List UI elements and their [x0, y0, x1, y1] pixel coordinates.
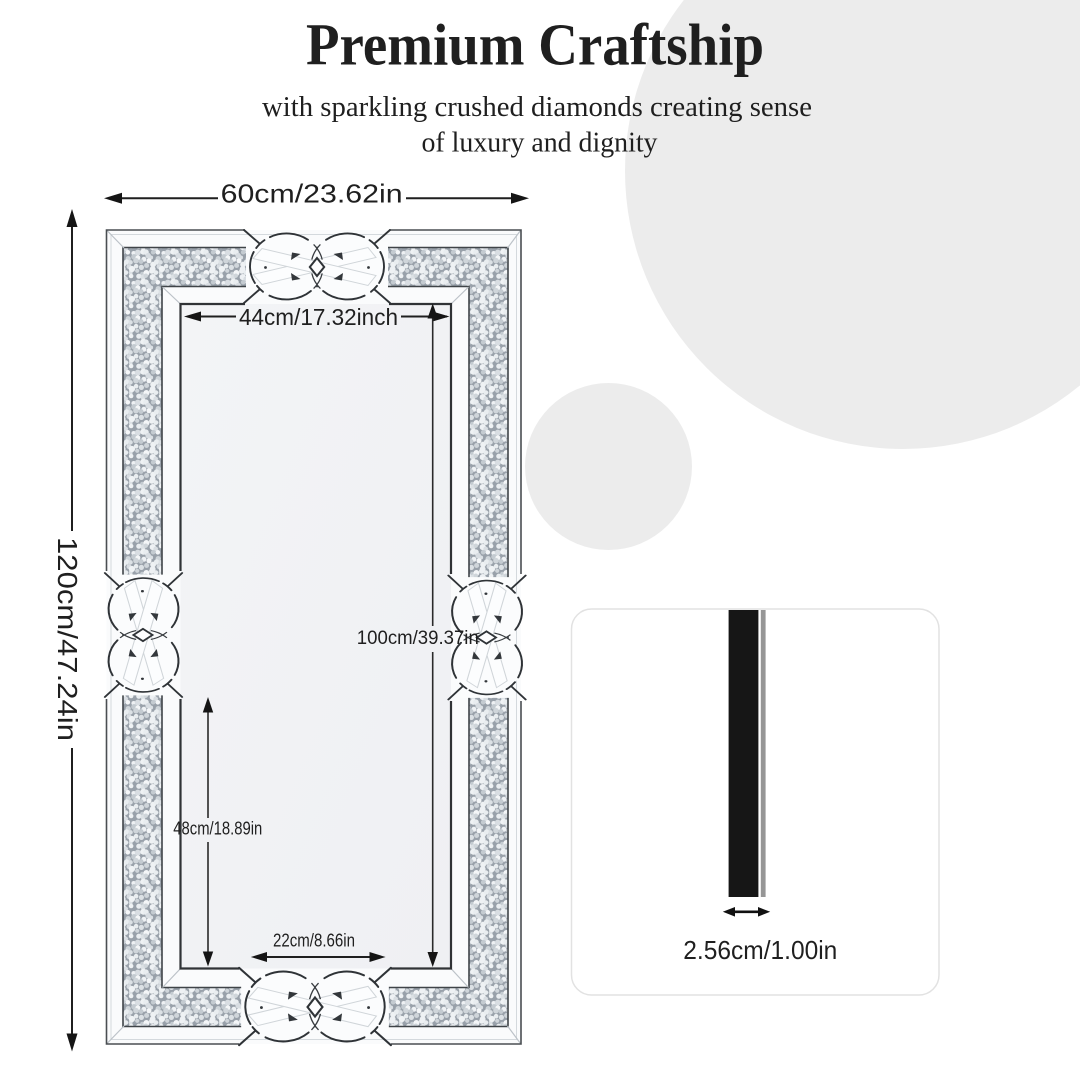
svg-text:100cm/39.37in: 100cm/39.37in: [357, 628, 479, 649]
svg-text:48cm/18.89in: 48cm/18.89in: [173, 819, 262, 839]
svg-text:Premium Craftship: Premium Craftship: [306, 12, 764, 78]
svg-text:44cm/17.32inch: 44cm/17.32inch: [239, 304, 398, 330]
svg-text:2.56cm/1.00in: 2.56cm/1.00in: [683, 935, 837, 965]
svg-text:60cm/23.62in: 60cm/23.62in: [221, 179, 403, 209]
svg-text:120cm/47.24in: 120cm/47.24in: [52, 537, 83, 741]
svg-text:22cm/8.66in: 22cm/8.66in: [273, 931, 355, 951]
svg-text:with sparkling crushed diamond: with sparkling crushed diamonds creating…: [262, 92, 812, 123]
svg-text:of luxury and dignity: of luxury and dignity: [422, 128, 658, 159]
